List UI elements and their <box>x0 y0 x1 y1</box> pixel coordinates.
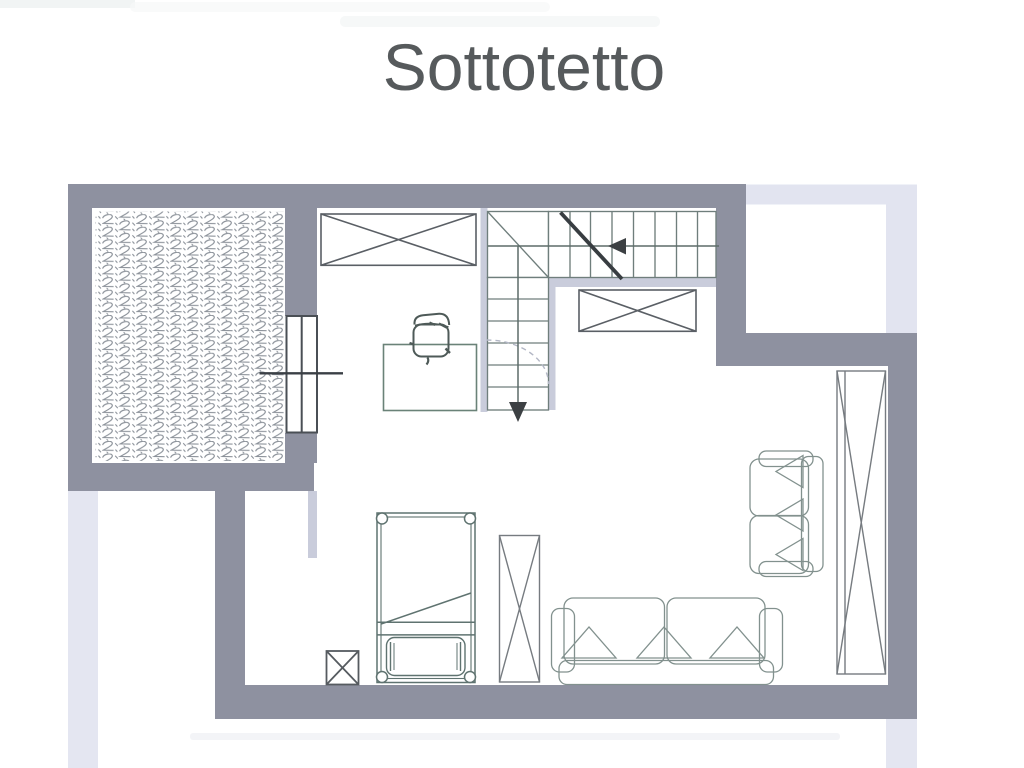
svg-text:Sottotetto: Sottotetto <box>383 30 666 104</box>
